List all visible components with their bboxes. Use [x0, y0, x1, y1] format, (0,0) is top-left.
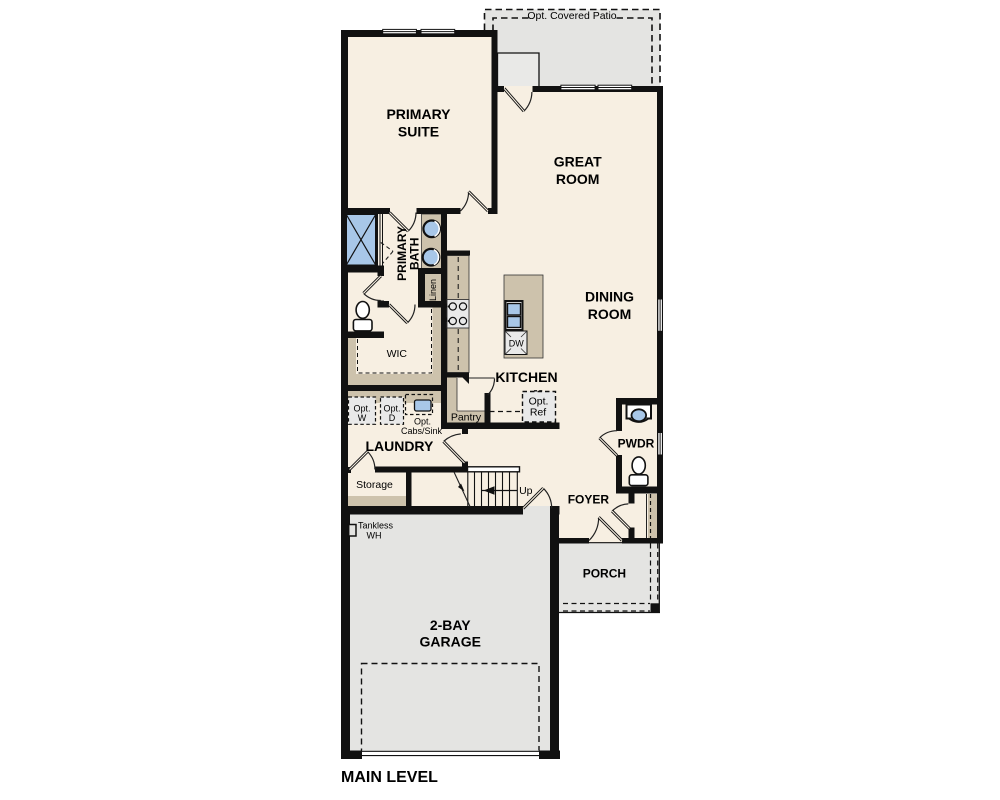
svg-text:Up: Up [519, 485, 533, 497]
svg-text:FOYER: FOYER [568, 493, 610, 507]
svg-text:BATH: BATH [408, 238, 422, 270]
svg-text:Pantry: Pantry [451, 412, 482, 424]
svg-text:Opt.: Opt. [383, 404, 400, 414]
svg-text:D: D [389, 413, 396, 423]
svg-text:Opt. Covered Patio: Opt. Covered Patio [527, 10, 616, 22]
svg-text:SUITE: SUITE [398, 124, 439, 140]
svg-text:Storage: Storage [356, 479, 393, 491]
svg-text:Ref: Ref [530, 407, 546, 419]
svg-text:PRIMARY: PRIMARY [386, 106, 451, 122]
svg-text:LAUNDRY: LAUNDRY [365, 438, 434, 454]
svg-text:GARAGE: GARAGE [419, 633, 480, 649]
svg-text:MAIN LEVEL: MAIN LEVEL [341, 769, 438, 786]
svg-text:Linen: Linen [428, 279, 438, 301]
svg-text:GREAT: GREAT [554, 153, 602, 169]
svg-text:PWDR: PWDR [618, 437, 655, 451]
svg-text:Opt.: Opt. [353, 404, 370, 414]
svg-text:ROOM: ROOM [556, 171, 600, 187]
svg-text:ROOM: ROOM [588, 306, 632, 322]
svg-text:Tankless: Tankless [358, 521, 394, 531]
svg-text:DW: DW [509, 339, 524, 349]
svg-text:KITCHEN: KITCHEN [495, 369, 557, 385]
svg-text:W: W [358, 413, 367, 423]
svg-text:PORCH: PORCH [583, 567, 626, 581]
svg-text:DINING: DINING [585, 289, 634, 305]
svg-text:WIC: WIC [387, 348, 408, 360]
svg-text:2-BAY: 2-BAY [430, 617, 471, 633]
svg-text:Cabs/Sink: Cabs/Sink [401, 426, 443, 436]
svg-text:WH: WH [367, 531, 382, 541]
